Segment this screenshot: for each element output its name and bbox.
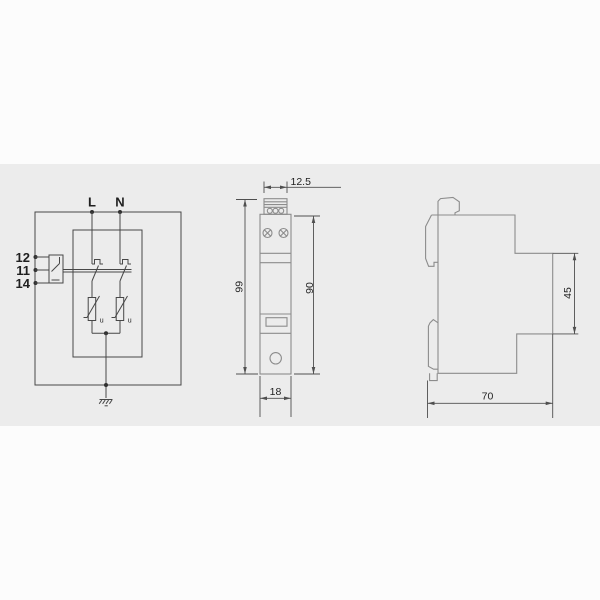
dim-total-depth-value: 70 xyxy=(482,391,494,403)
enclosure-node-dot xyxy=(104,383,108,387)
dim-top-width-value: 12.5 xyxy=(291,176,312,188)
neutral-label: N xyxy=(115,195,124,210)
varistor-left-u-label: u xyxy=(100,318,104,325)
dim-total-height-value: 99 xyxy=(234,281,246,293)
dim-upper-depth-value: 45 xyxy=(562,287,574,299)
dim-bottom-width-value: 18 xyxy=(270,386,282,398)
dim-body-height-value: 90 xyxy=(304,282,316,294)
phase-label: L xyxy=(88,195,96,210)
varistor-right-u-label: u xyxy=(128,318,132,325)
technical-drawing: L N u u xyxy=(0,0,600,600)
terminal-14-label: 14 xyxy=(16,276,31,291)
